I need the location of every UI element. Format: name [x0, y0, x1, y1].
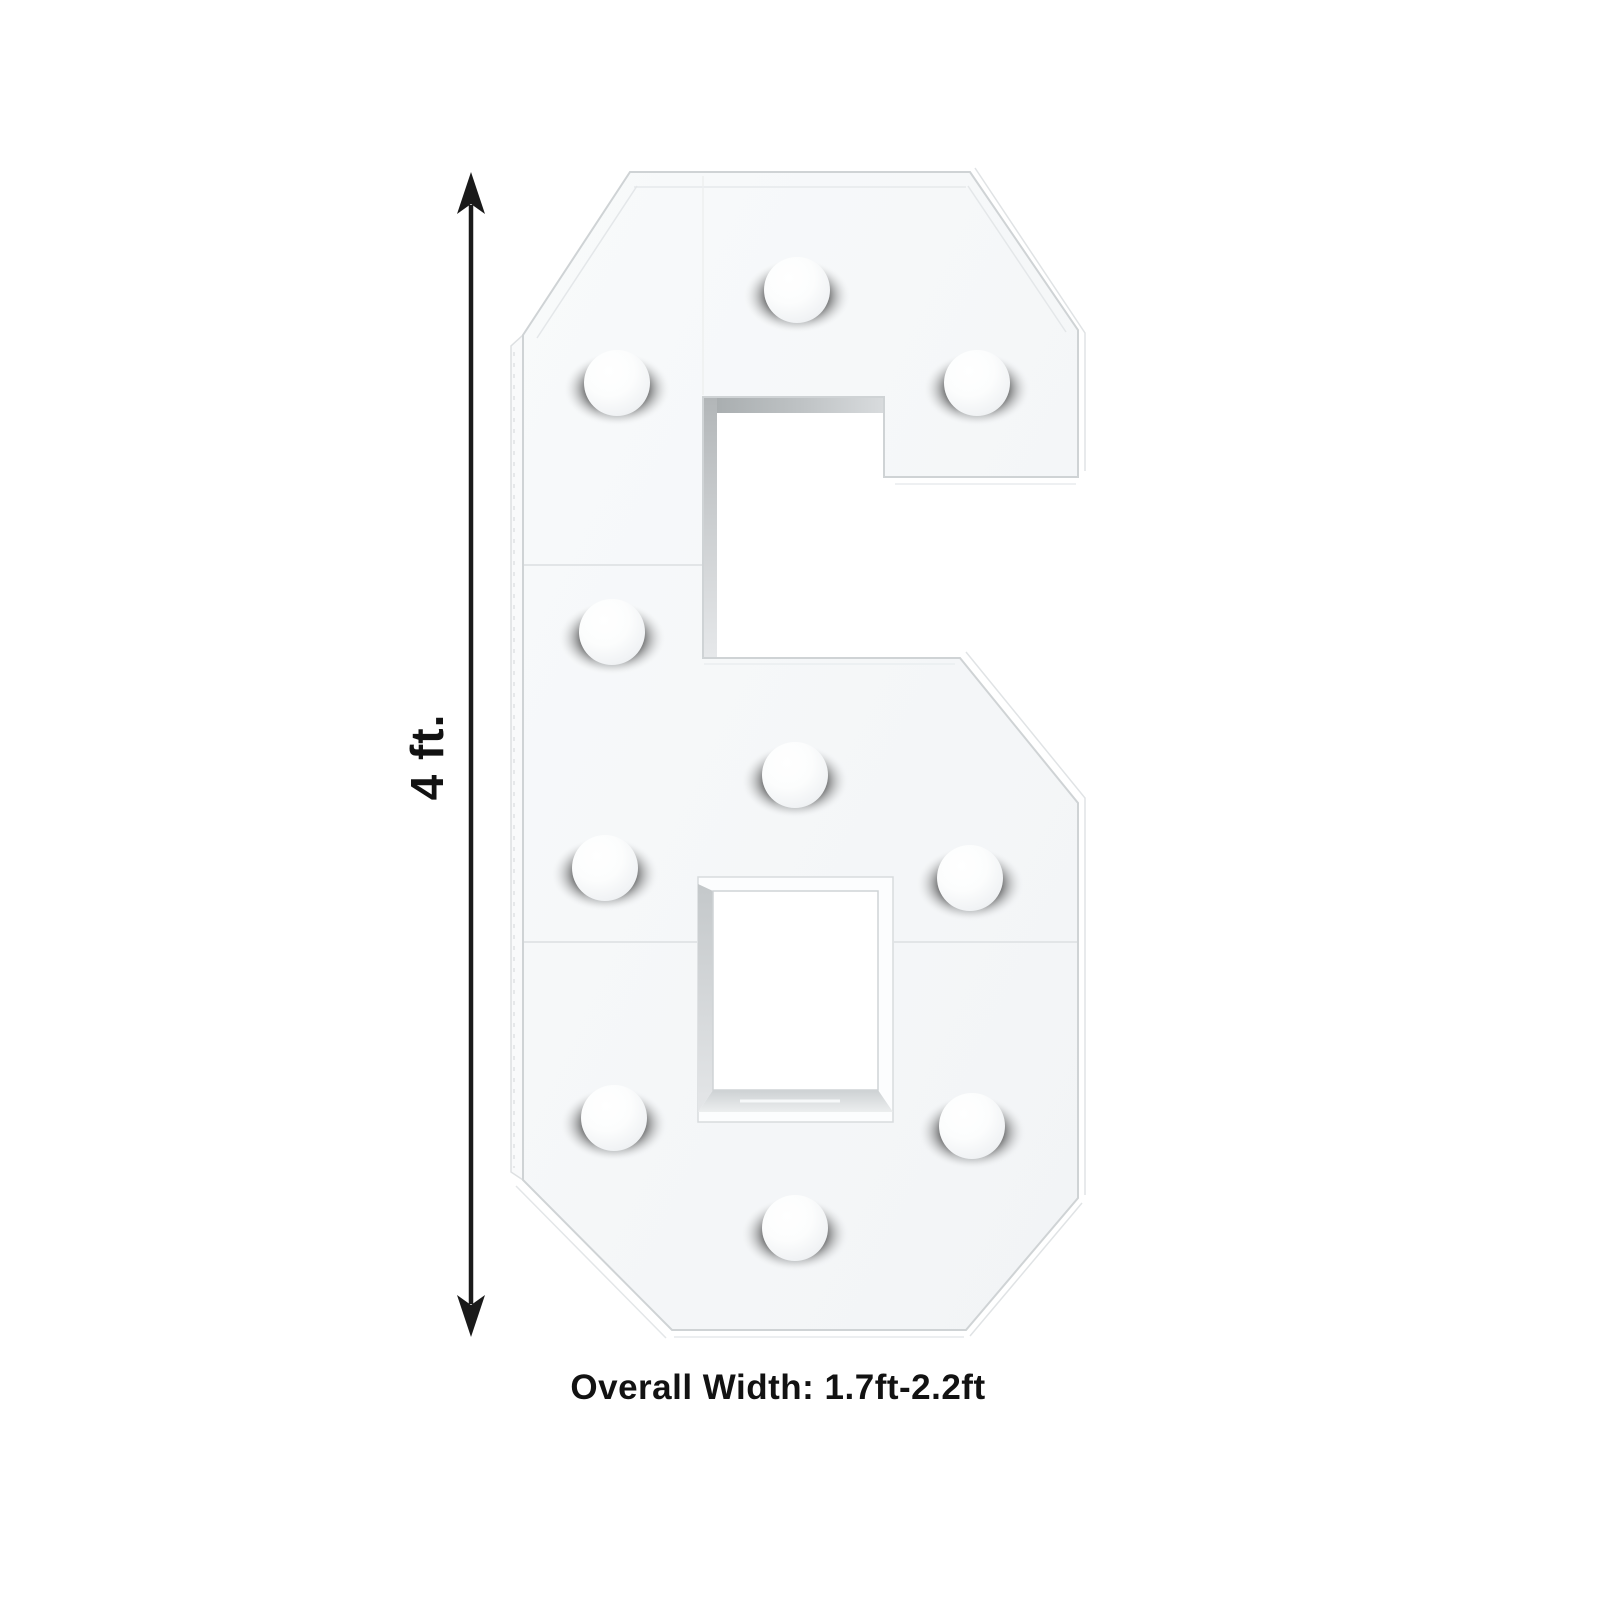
height-label: 4 ft. — [400, 714, 454, 801]
lower-cutout-hole — [713, 891, 878, 1090]
marquee-number-6-graphic — [0, 0, 1600, 1600]
width-label: Overall Width: 1.7ft-2.2ft — [570, 1368, 985, 1408]
lower-counter-opening — [698, 877, 893, 1122]
upper-counter-opening — [704, 398, 883, 657]
upper-counter-top-wall — [704, 398, 883, 413]
height-dimension-arrow — [457, 172, 485, 1337]
number-6-frame — [511, 168, 1085, 1338]
product-dimension-image: 4 ft. Overall Width: 1.7ft-2.2ft — [0, 0, 1600, 1600]
lower-cutout-left-wall — [698, 884, 713, 1112]
frame-left-sidewall — [511, 335, 523, 1180]
upper-counter-left-wall — [704, 398, 717, 657]
